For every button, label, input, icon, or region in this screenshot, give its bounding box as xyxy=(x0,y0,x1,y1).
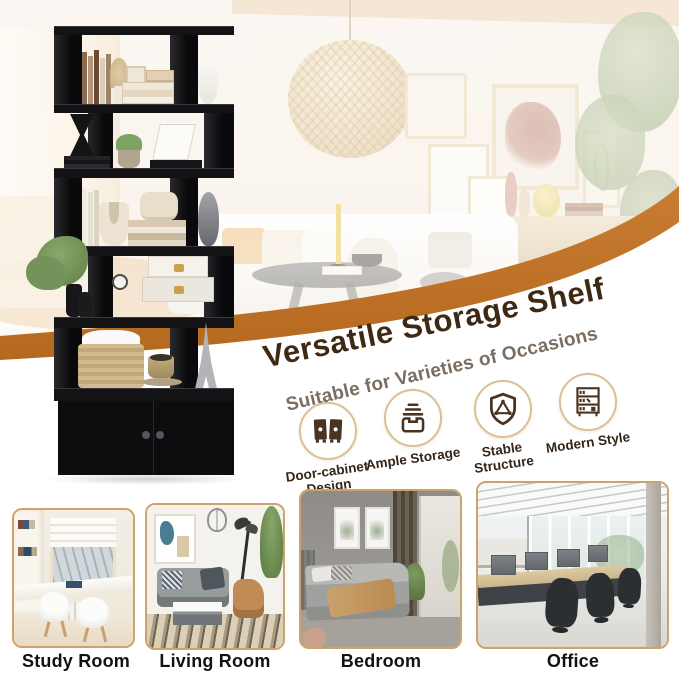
living-plant xyxy=(260,506,283,578)
frame-art xyxy=(177,536,189,557)
office-chair xyxy=(585,572,616,618)
print-art xyxy=(340,515,354,539)
study-floor xyxy=(14,617,133,646)
white-chair xyxy=(76,597,109,628)
door-cabinet-icon xyxy=(310,413,346,449)
decor-tray xyxy=(150,160,202,168)
shelf-board xyxy=(54,388,234,401)
feature-ring xyxy=(299,402,357,460)
decor-clock xyxy=(112,274,128,290)
u-vase-notch xyxy=(109,202,119,224)
feature-ring xyxy=(384,389,442,447)
decor-u-vase xyxy=(99,202,129,246)
roman-blind xyxy=(50,518,117,547)
floor-pillow xyxy=(303,628,327,647)
shield-triangle-icon xyxy=(485,391,521,427)
decor-plant-pot xyxy=(118,150,140,168)
decor-gift-box xyxy=(148,256,208,277)
botanical-print xyxy=(334,507,359,549)
shelf-panel xyxy=(170,35,198,104)
decor-books-upright xyxy=(82,46,112,104)
decor-book-stack xyxy=(122,82,174,104)
decor-gray-vase xyxy=(198,192,219,246)
patterned-pillow xyxy=(331,566,352,580)
decor-wicker-basket xyxy=(78,344,144,388)
cup-opening xyxy=(150,354,172,361)
feature-ring xyxy=(474,380,532,438)
concrete-column xyxy=(646,483,661,647)
shelf-books xyxy=(18,520,36,530)
monitor xyxy=(491,555,516,575)
print-art xyxy=(370,515,384,539)
shelf-board xyxy=(54,168,234,178)
decor-leaning-tablet xyxy=(152,124,196,160)
living-room-photo xyxy=(145,503,285,650)
living-frame xyxy=(154,514,196,564)
card-label-office: Office xyxy=(498,651,648,672)
decor-dark-books xyxy=(64,156,110,168)
decor-gift-box xyxy=(142,277,214,302)
office-photo xyxy=(476,481,669,649)
decor-white-books xyxy=(82,186,99,246)
shelf-panel xyxy=(54,35,82,104)
decor-black-bottle xyxy=(78,292,92,317)
frame-art xyxy=(160,521,174,545)
bookshelf-icon xyxy=(570,384,606,420)
decor-box xyxy=(146,70,174,81)
card-label-bedroom: Bedroom xyxy=(306,651,456,672)
laptop xyxy=(66,581,81,588)
cabinet-knob xyxy=(142,431,150,439)
shelf-board xyxy=(54,26,234,35)
decor-book-stack xyxy=(128,220,186,246)
decor-saucer xyxy=(142,378,182,386)
product-infographic: Versatile Storage Shelf Suitable for Var… xyxy=(0,0,679,673)
decor-plant-frond xyxy=(26,256,66,290)
office-chair xyxy=(617,568,642,605)
monitor xyxy=(557,549,580,567)
office-ceiling xyxy=(478,483,667,516)
shelf-board xyxy=(54,317,234,328)
card-label-study-room: Study Room xyxy=(1,651,151,672)
monitor xyxy=(588,545,609,561)
white-chair xyxy=(38,592,70,622)
gold-clasp xyxy=(174,264,184,272)
decor-hatbox xyxy=(140,192,178,220)
product-shelf xyxy=(52,22,238,480)
bedroom-photo xyxy=(299,489,462,649)
shelf-cabinet xyxy=(58,401,234,475)
decor-coffee-cup xyxy=(148,356,174,378)
shelf-panel xyxy=(204,113,234,168)
wire-pendant xyxy=(207,508,227,532)
decor-sculpture xyxy=(198,56,218,104)
botanical-print xyxy=(365,507,390,549)
card-label-living-room: Living Room xyxy=(140,651,290,672)
glass-door xyxy=(419,496,460,633)
office-chair xyxy=(544,577,579,628)
shelf-shadow xyxy=(44,473,248,485)
dark-cushion xyxy=(200,566,226,590)
cabinet-knob xyxy=(156,431,164,439)
patterned-cushion xyxy=(162,571,182,590)
storage-drawer-icon xyxy=(395,400,431,436)
gold-clasp xyxy=(174,286,184,294)
coffee-table xyxy=(173,602,222,625)
shelf-board xyxy=(54,104,234,113)
cabinet-door-split xyxy=(153,401,154,475)
outdoor-plant xyxy=(442,540,460,592)
feature-modern-style: Modern Style xyxy=(526,373,650,450)
wood-armchair xyxy=(233,579,264,618)
shelf-books xyxy=(18,547,37,557)
study-room-photo xyxy=(12,508,135,648)
feature-ring xyxy=(559,373,617,431)
monitor xyxy=(525,552,548,570)
